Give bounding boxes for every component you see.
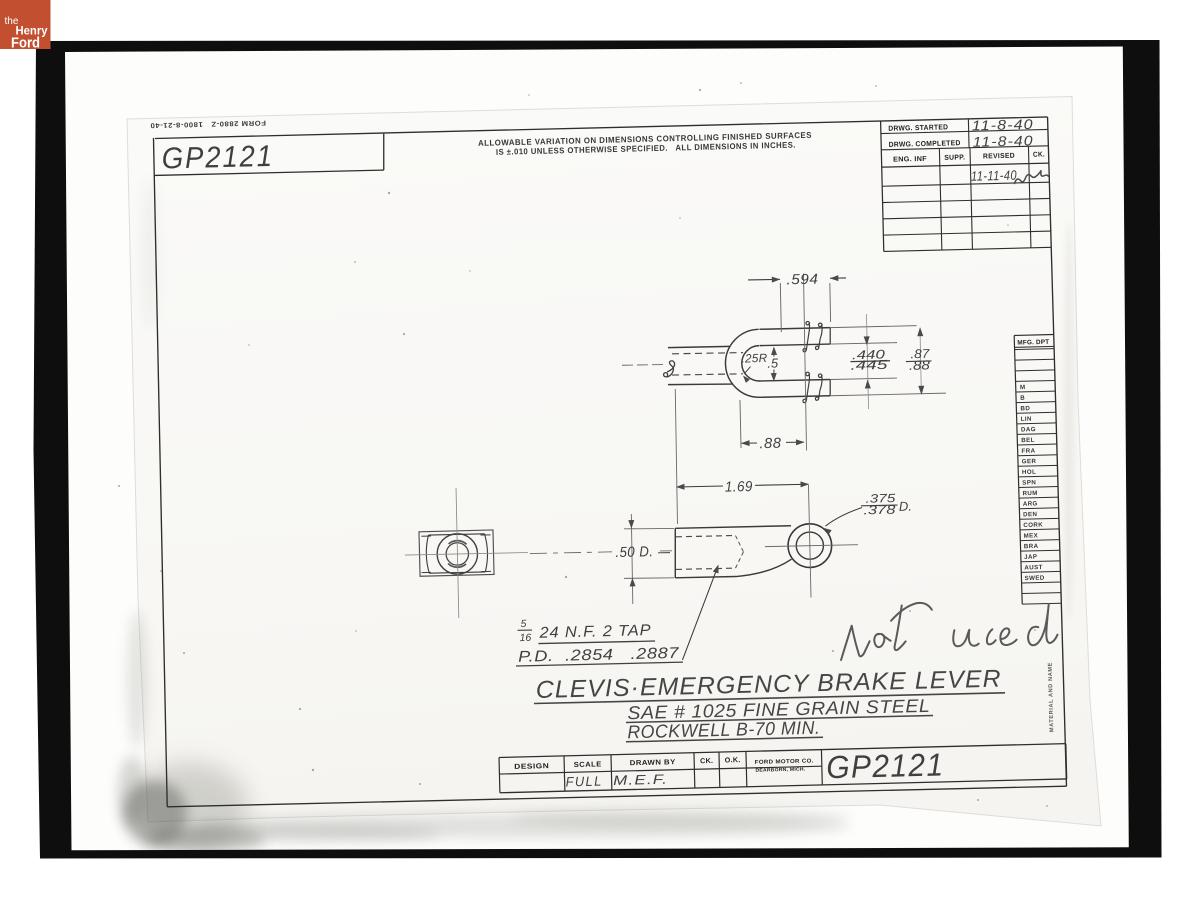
svg-text:5: 5 bbox=[520, 618, 526, 630]
svg-text:DRWG. COMPLETED: DRWG. COMPLETED bbox=[889, 138, 961, 149]
svg-text:D.: D. bbox=[899, 499, 912, 514]
svg-text:DAG: DAG bbox=[1021, 426, 1036, 433]
svg-text:SPN: SPN bbox=[1022, 479, 1036, 486]
svg-text:O.K.: O.K. bbox=[725, 755, 741, 764]
svg-text:M: M bbox=[1020, 384, 1026, 391]
svg-text:11-8-40: 11-8-40 bbox=[972, 132, 1033, 149]
svg-text:.594: .594 bbox=[786, 272, 818, 289]
svg-text:B: B bbox=[1020, 395, 1025, 402]
svg-text:HOL: HOL bbox=[1022, 469, 1036, 476]
svg-text:SWED: SWED bbox=[1025, 575, 1045, 582]
svg-text:Ford: Ford bbox=[11, 36, 40, 52]
svg-text:LIN: LIN bbox=[1021, 416, 1032, 423]
svg-text:BRA: BRA bbox=[1024, 543, 1039, 550]
svg-text:1.69: 1.69 bbox=[725, 479, 753, 496]
svg-text:.88: .88 bbox=[909, 357, 931, 373]
svg-text:.5: .5 bbox=[767, 355, 779, 370]
svg-text:MEX: MEX bbox=[1023, 532, 1038, 539]
svg-text:24 N.F. 2 TAP: 24 N.F. 2 TAP bbox=[538, 622, 651, 642]
svg-text:AUST: AUST bbox=[1024, 564, 1043, 571]
svg-text:ENG. INF: ENG. INF bbox=[893, 155, 928, 164]
svg-text:.378: .378 bbox=[863, 503, 895, 518]
svg-text:REVISED: REVISED bbox=[983, 152, 1015, 161]
svg-text:DRWG. STARTED: DRWG. STARTED bbox=[888, 122, 948, 132]
svg-text:BD: BD bbox=[1020, 405, 1030, 412]
svg-text:M.E.F.: M.E.F. bbox=[613, 772, 668, 788]
svg-text:GER: GER bbox=[1022, 458, 1037, 465]
svg-text:FRA: FRA bbox=[1021, 447, 1035, 454]
svg-text:DRAWN BY: DRAWN BY bbox=[630, 757, 676, 767]
svg-text:16: 16 bbox=[519, 632, 531, 644]
svg-text:.88: .88 bbox=[759, 436, 781, 453]
svg-text:DEN: DEN bbox=[1023, 511, 1038, 518]
svg-text:ARG: ARG bbox=[1023, 500, 1038, 507]
svg-text:.25R: .25R bbox=[741, 351, 767, 366]
svg-text:11-8-40: 11-8-40 bbox=[972, 116, 1034, 134]
svg-text:MFG. DPT: MFG. DPT bbox=[1017, 339, 1049, 347]
svg-text:11-11-40: 11-11-40 bbox=[971, 168, 1017, 184]
svg-text:CK.: CK. bbox=[1033, 150, 1045, 158]
svg-text:.445: .445 bbox=[850, 357, 888, 373]
svg-text:.50 D.: .50 D. bbox=[615, 544, 653, 561]
svg-text:RUM: RUM bbox=[1022, 490, 1037, 497]
svg-text:FULL: FULL bbox=[565, 774, 602, 790]
svg-text:SCALE: SCALE bbox=[574, 759, 602, 769]
svg-text:SUPP.: SUPP. bbox=[944, 153, 965, 162]
svg-text:CORK: CORK bbox=[1023, 522, 1043, 529]
svg-text:GP2121: GP2121 bbox=[826, 746, 945, 785]
svg-text:BEL: BEL bbox=[1021, 437, 1035, 444]
svg-text:DESIGN: DESIGN bbox=[514, 761, 549, 771]
svg-text:GP2121: GP2121 bbox=[161, 140, 274, 176]
svg-text:CK.: CK. bbox=[700, 756, 713, 765]
svg-text:JAP: JAP bbox=[1024, 554, 1037, 561]
